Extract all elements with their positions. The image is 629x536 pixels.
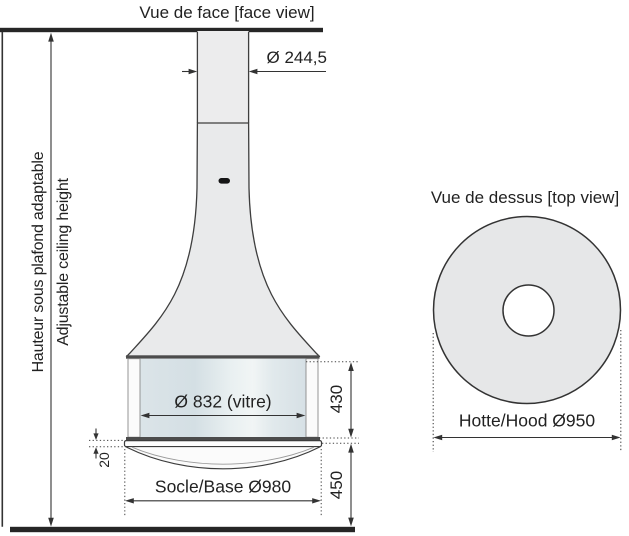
base-plate [125, 441, 322, 447]
arrowhead [125, 498, 134, 503]
arrowhead [48, 33, 54, 42]
arrowhead [48, 518, 54, 527]
fireplace-technical-drawing: Vue de face [face view] Ø 244,5 Hauteur … [0, 0, 629, 536]
damper-handle [219, 178, 231, 184]
hood-rim [126, 355, 320, 358]
ceiling-height-label-fr: Hauteur sous plafond adaptable [30, 152, 48, 373]
arrowhead [348, 429, 354, 438]
hood-diameter-label: Hotte/Hood Ø950 [459, 411, 595, 432]
arrowhead [93, 433, 98, 440]
base-dish [126, 447, 321, 469]
base-diameter-label: Socle/Base Ø980 [155, 477, 291, 498]
arrowhead [249, 69, 258, 74]
glass-bottom-frame [126, 437, 320, 440]
hood-body [127, 123, 320, 357]
arrowhead [348, 362, 354, 371]
flue-inner-circle [503, 285, 554, 336]
base-thickness-label: 20 [96, 452, 112, 468]
arrowhead [612, 435, 621, 440]
glass-left-post [128, 359, 140, 438]
face-view-title: Vue de face [face view] [139, 3, 314, 23]
arrowhead [433, 435, 442, 440]
arrowhead [348, 518, 354, 527]
top-view-title: Vue de dessus [top view] [431, 188, 619, 208]
flue-pipe [197, 31, 248, 124]
flue-diameter-label: Ø 244,5 [267, 48, 328, 68]
extension-lines-20 [89, 440, 124, 446]
arrowhead [348, 444, 354, 453]
arrowhead [189, 69, 198, 74]
arrowhead [312, 498, 321, 503]
ceiling-line [0, 28, 323, 32]
floor-line [10, 527, 355, 532]
glass-diameter-label: Ø 832 (vitre) [174, 392, 271, 413]
base-to-floor-label: 450 [327, 471, 347, 499]
glass-height-label: 430 [327, 385, 347, 413]
drawing-linework [0, 0, 629, 536]
ceiling-height-label-en: Adjustable ceiling height [55, 178, 73, 346]
glass-right-post [306, 359, 318, 438]
